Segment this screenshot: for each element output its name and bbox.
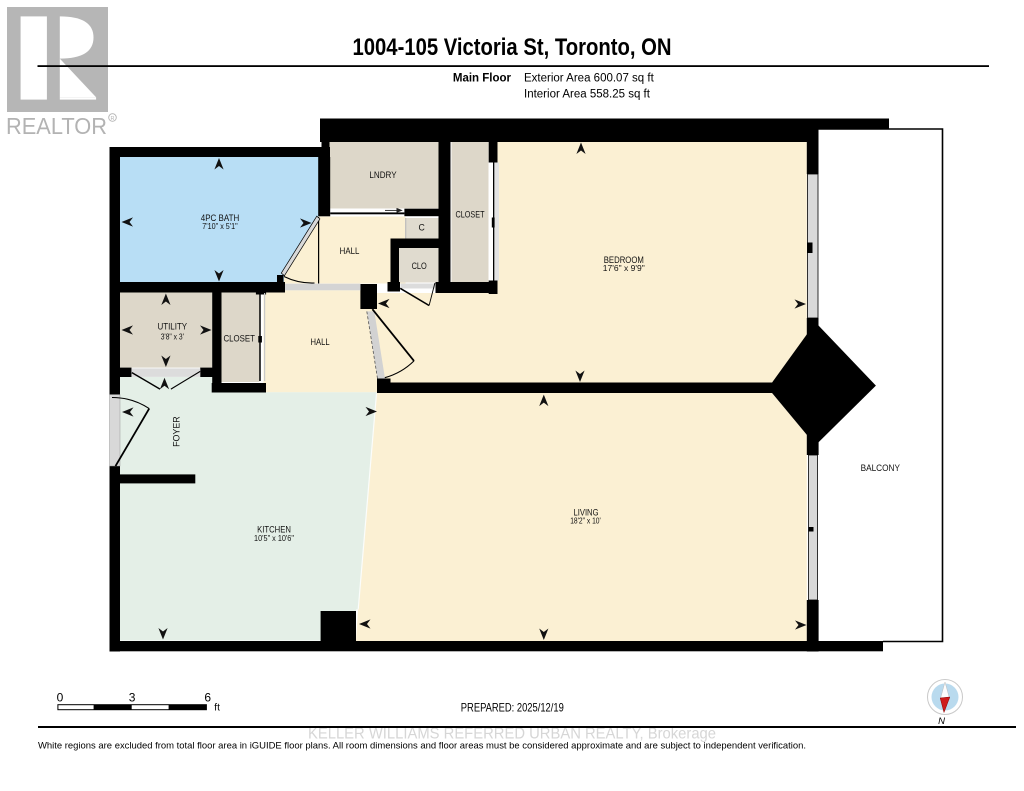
svg-text:FOYER: FOYER (172, 416, 183, 447)
svg-text:17'6" x 9'9": 17'6" x 9'9" (603, 263, 645, 273)
svg-text:PREPARED: 2025/12/19: PREPARED: 2025/12/19 (461, 700, 564, 714)
svg-text:0: 0 (57, 691, 64, 705)
svg-text:White regions are excluded fro: White regions are excluded from total fl… (38, 741, 806, 751)
svg-text:BALCONY: BALCONY (861, 463, 901, 474)
svg-text:Exterior Area 600.07 sq ft: Exterior Area 600.07 sq ft (524, 73, 655, 85)
svg-text:CLOSET: CLOSET (223, 333, 255, 344)
svg-text:REALTOR: REALTOR (6, 113, 107, 139)
svg-text:Main Floor: Main Floor (453, 73, 512, 85)
svg-text:R: R (111, 116, 115, 122)
svg-text:N: N (938, 716, 945, 727)
svg-text:CLO: CLO (412, 261, 427, 272)
svg-text:6: 6 (204, 691, 211, 705)
svg-text:CLOSET: CLOSET (456, 210, 485, 221)
svg-text:7'10" x 5'1": 7'10" x 5'1" (202, 221, 237, 231)
svg-text:ft: ft (214, 703, 220, 714)
svg-text:HALL: HALL (311, 337, 330, 348)
svg-text:3: 3 (129, 691, 136, 705)
svg-text:1004-105 Victoria St, Toronto,: 1004-105 Victoria St, Toronto, ON (353, 34, 672, 61)
svg-text:LNDRY: LNDRY (369, 170, 397, 181)
svg-text:C: C (419, 223, 425, 234)
svg-text:10'5" x 10'6": 10'5" x 10'6" (254, 533, 294, 543)
svg-text:HALL: HALL (340, 246, 360, 257)
svg-text:18'2" x 10': 18'2" x 10' (570, 516, 601, 526)
svg-text:Interior Area 558.25 sq ft: Interior Area 558.25 sq ft (524, 89, 651, 101)
svg-text:3'8" x 3': 3'8" x 3' (161, 332, 184, 342)
